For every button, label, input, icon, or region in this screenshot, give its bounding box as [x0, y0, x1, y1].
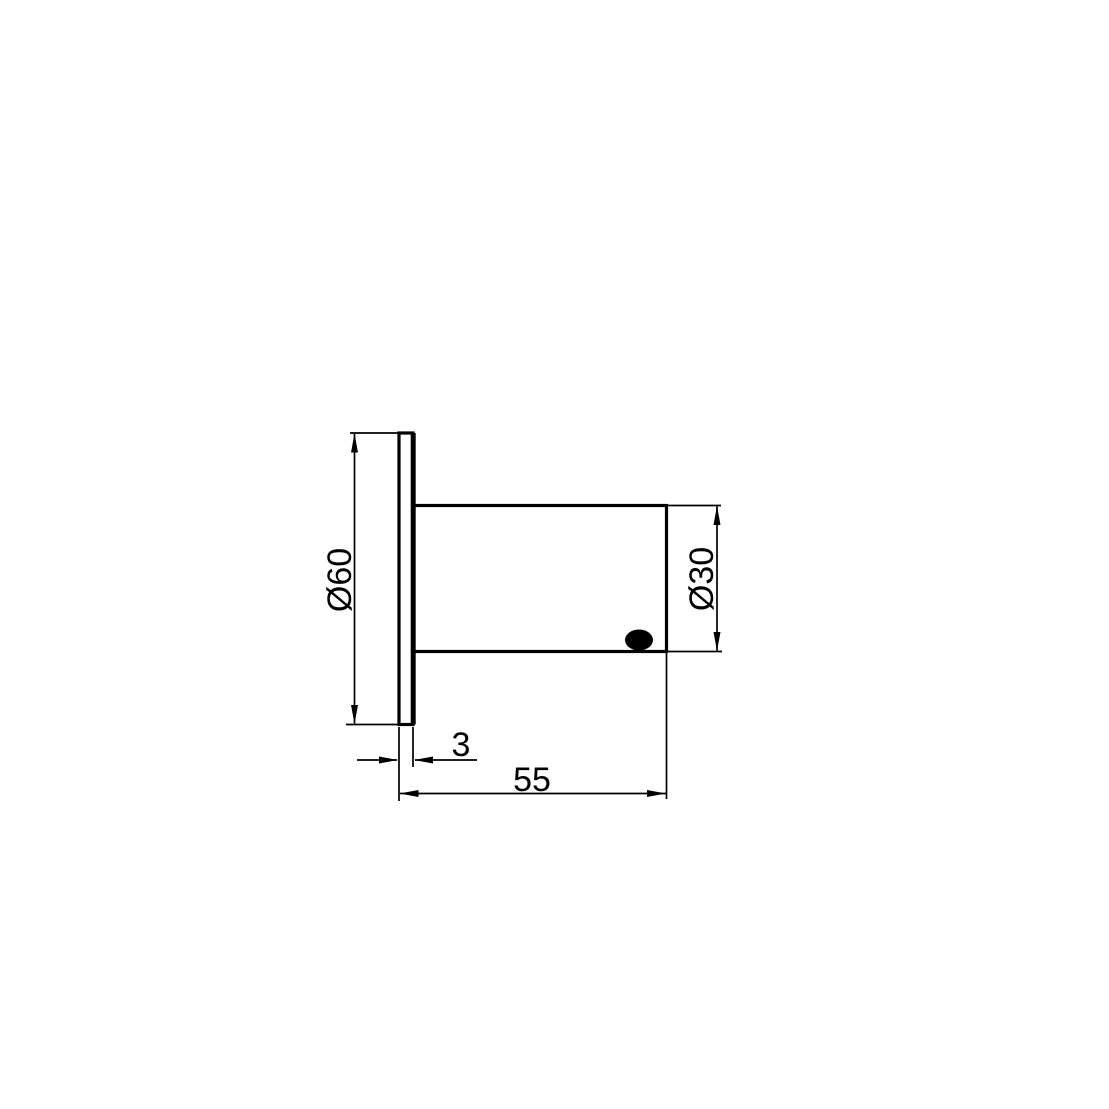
body-outline [413, 506, 667, 652]
arrowhead-down-icon [714, 632, 721, 651]
arrowhead-up-icon [714, 506, 721, 525]
dim-label-body-diameter: Ø30 [683, 547, 721, 611]
arrowhead-left-icon [414, 757, 433, 764]
dim-label-overall-length: 55 [513, 761, 551, 799]
arrowhead-right-icon [647, 790, 666, 797]
arrowhead-right-icon [379, 757, 398, 764]
hole-dot [625, 630, 653, 651]
dim-label-flange-thickness: 3 [452, 726, 471, 764]
dim-label-flange-diameter: Ø60 [321, 548, 359, 612]
arrowhead-left-icon [400, 790, 419, 797]
arrowhead-up-icon [351, 434, 358, 453]
technical-drawing: Ø60 Ø30 3 55 [0, 0, 1109, 1109]
arrowhead-down-icon [351, 705, 358, 724]
technical-drawing-canvas: Ø60 Ø30 3 55 [0, 0, 1109, 1109]
